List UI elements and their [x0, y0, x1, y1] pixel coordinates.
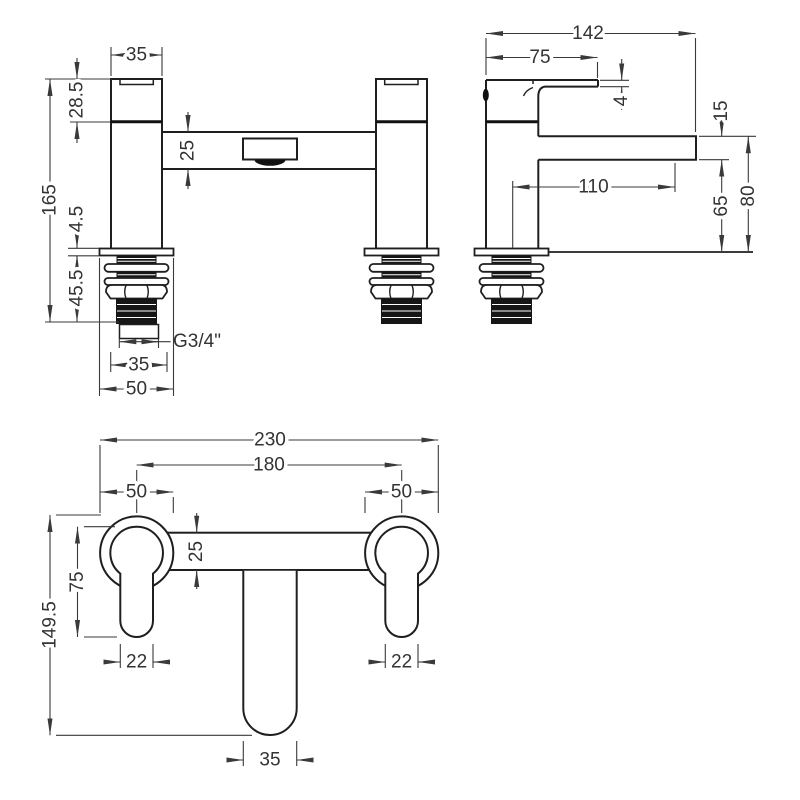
- dim-label-bar-depth: 25: [178, 140, 199, 161]
- dim-side-lever-thickness: 4: [600, 59, 632, 110]
- plan-view: 230 180 50 50 25 75: [40, 430, 439, 771]
- plan-bar: [137, 533, 402, 570]
- dim-plan-bar-width: 25: [186, 513, 207, 589]
- dim-label-base-width: 50: [126, 379, 147, 400]
- right-pillar: [376, 79, 427, 249]
- side-thread-assembly: [475, 249, 549, 325]
- dim-label-handle-reach: 75: [529, 47, 550, 68]
- dim-label-tap-centres: 180: [253, 455, 285, 476]
- dim-label-nut-width: 35: [128, 355, 149, 376]
- dim-label-height-above-deck: 80: [738, 185, 759, 206]
- aerator: [255, 160, 286, 166]
- plan-spout: [243, 571, 296, 735]
- dim-label-body-width: 35: [126, 45, 147, 66]
- thread-tail-pipe: [120, 325, 159, 339]
- dim-label-overall-width: 230: [254, 430, 286, 451]
- dim-front-handle-height: 28.5: [45, 58, 111, 143]
- dim-label-bar-width: 25: [186, 541, 207, 562]
- right-thread-assembly: [365, 249, 439, 325]
- spout-outlet: [243, 139, 297, 160]
- dim-label-flange-thickness: 4.5: [67, 206, 88, 232]
- front-view: 35 28.5 25 165 4.5 45.5: [40, 45, 439, 400]
- dim-front-thread-length: 45.5: [67, 256, 88, 322]
- dim-label-overall-depth: 142: [572, 23, 604, 44]
- dim-label-left-flange-dia: 50: [126, 482, 147, 503]
- dim-plan-spout-width: 35: [227, 741, 313, 771]
- dim-label-lever-thickness: 4: [611, 95, 632, 106]
- dim-label-thread-length: 45.5: [67, 270, 88, 307]
- dim-label-right-flange-dia: 50: [391, 482, 412, 503]
- dim-side-handle-reach: 75: [486, 47, 598, 78]
- dim-label-spout-clearance: 65: [711, 195, 732, 216]
- dim-label-spout-thickness: 15: [711, 100, 732, 121]
- dim-label-overall-depth: 149.5: [40, 601, 61, 649]
- dim-side-spout-clearance: 65: [711, 160, 732, 252]
- dim-label-total-height: 165: [40, 184, 61, 216]
- dim-front-bar-depth: 25: [178, 112, 199, 189]
- dim-front-flange-thickness: 4.5: [67, 206, 100, 274]
- dim-side-height-above-deck: 80: [738, 136, 759, 252]
- lever-tip: [483, 89, 489, 101]
- dim-label-right-lever-width: 22: [391, 652, 412, 673]
- dim-label-handle-height: 28.5: [67, 82, 88, 119]
- dim-plan-left-lever-width: 22: [104, 644, 169, 673]
- bath-tap-technical-drawing: 35 28.5 25 165 4.5 45.5: [0, 0, 800, 800]
- dim-plan-tap-centres: 180: [137, 455, 402, 514]
- dim-label-handle-length: 75: [67, 571, 88, 592]
- left-thread-assembly: [100, 249, 174, 325]
- dim-side-spout-thickness: 15: [699, 100, 756, 159]
- dim-label-spout-reach: 110: [578, 177, 608, 198]
- spout-arm: [538, 136, 696, 159]
- dim-front-body-width: 35: [111, 45, 162, 77]
- dim-front-nut-width: 35: [111, 352, 167, 376]
- dim-label-left-lever-width: 22: [126, 652, 147, 673]
- dim-plan-right-lever-width: 22: [369, 644, 434, 673]
- dim-label-spout-width: 35: [259, 750, 280, 771]
- technical-drawing-page: 35 28.5 25 165 4.5 45.5: [0, 0, 800, 800]
- left-pillar: [111, 79, 162, 249]
- dim-label-thread-size: G3/4": [173, 331, 221, 352]
- side-view: 142 75 4 15 110 65 80: [475, 23, 759, 324]
